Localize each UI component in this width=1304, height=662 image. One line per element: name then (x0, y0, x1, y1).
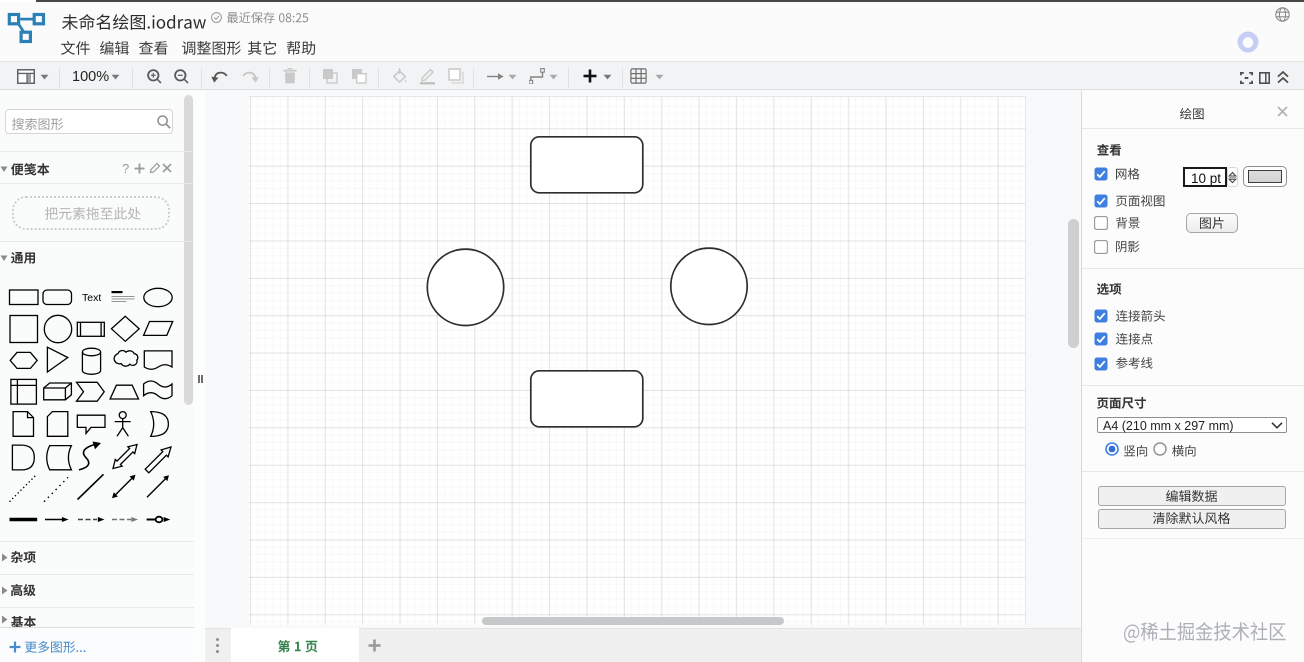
svg-text:Text: Text (82, 292, 101, 304)
